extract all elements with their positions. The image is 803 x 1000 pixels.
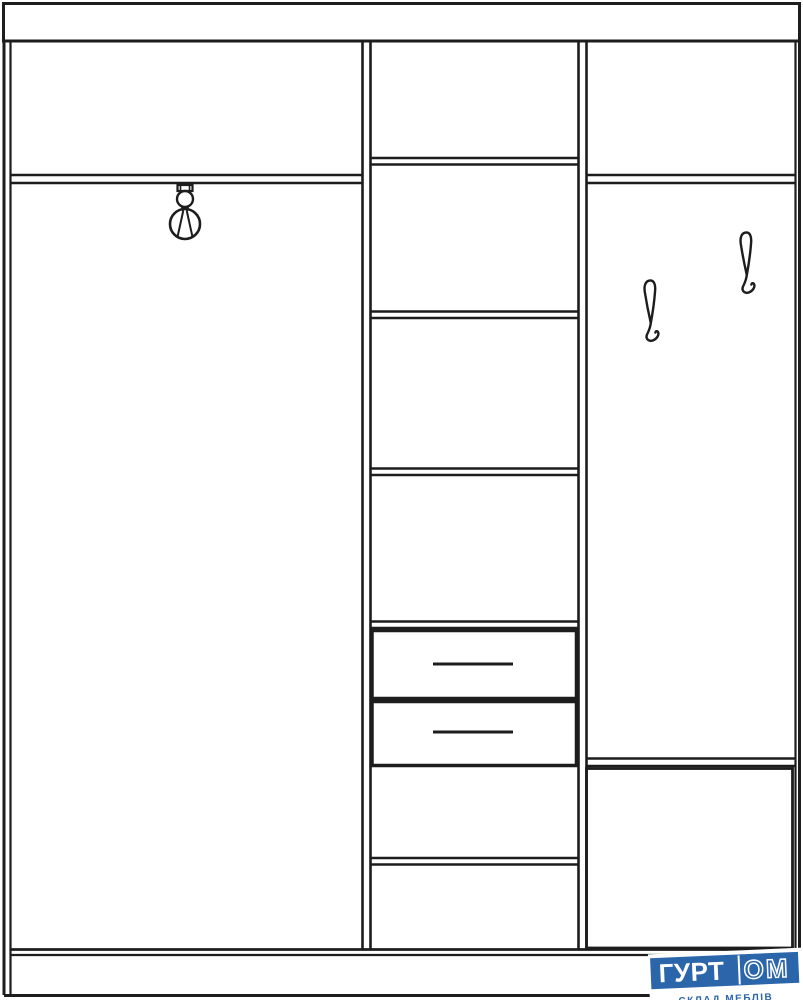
rail-tube-inner-right bbox=[187, 211, 193, 237]
top-panel bbox=[4, 4, 800, 42]
left-top-shelf bbox=[10, 175, 362, 183]
drawer-1 bbox=[372, 631, 577, 699]
middle-shelf-2 bbox=[371, 312, 578, 319]
logo-text-om: ОМ bbox=[743, 953, 790, 985]
left-partition bbox=[363, 41, 371, 950]
middle-shelf-3 bbox=[371, 469, 578, 476]
coat-hook-1 bbox=[645, 281, 659, 341]
coat-hook-2-loop bbox=[741, 233, 752, 276]
coat-hook-2 bbox=[741, 233, 755, 293]
logo-divider bbox=[739, 955, 740, 984]
drawer-2 bbox=[372, 702, 577, 766]
rail-holder-upper-circle bbox=[177, 191, 193, 207]
right-top-shelf bbox=[587, 175, 796, 183]
coat-hook-1-loop bbox=[645, 281, 656, 324]
middle-shelf-5 bbox=[371, 858, 578, 865]
rail-tube-circle bbox=[170, 209, 200, 239]
right-lower-shelf bbox=[587, 759, 796, 767]
schematic-drawing bbox=[0, 0, 803, 1000]
middle-shelf-1 bbox=[371, 158, 578, 165]
logo-tagline: СКЛАД МЕБЛІВ bbox=[650, 990, 802, 1000]
logo-text-gurt: ГУРТ bbox=[658, 956, 725, 989]
bottom-right-cabinet-box bbox=[587, 769, 793, 949]
brand-logo-box: ГУРТ ОМ bbox=[648, 950, 801, 992]
rail-tube-inner-left bbox=[178, 211, 184, 237]
coat-hook-1-tail bbox=[647, 323, 659, 341]
brand-logo: ГУРТ ОМ СКЛАД МЕБЛІВ bbox=[648, 948, 803, 1000]
clothes-rail-holder bbox=[170, 185, 200, 239]
middle-shelves bbox=[371, 158, 578, 865]
coat-hook-2-tail bbox=[743, 275, 755, 293]
wardrobe-schematic: ГУРТ ОМ СКЛАД МЕБЛІВ bbox=[0, 0, 803, 1000]
middle-shelf-4 bbox=[371, 622, 578, 629]
